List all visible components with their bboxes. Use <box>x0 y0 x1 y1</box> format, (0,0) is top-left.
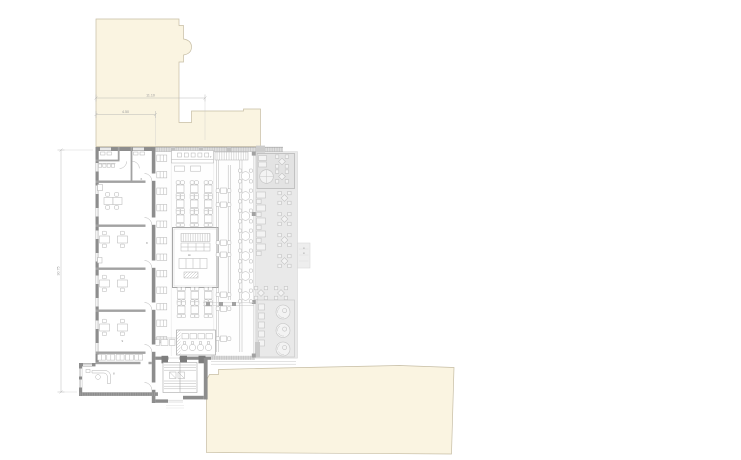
lobby-east-wall <box>204 358 208 400</box>
hall-south-wall <box>155 356 211 364</box>
room-label: 6 <box>141 177 143 181</box>
floor-plan-canvas: 11.10 4.50 30.75 <box>0 0 741 460</box>
room-label: 9 <box>122 339 124 343</box>
sink <box>99 164 102 167</box>
sink <box>111 164 114 167</box>
dimension-label-left-width: 4.50 <box>122 110 129 114</box>
room-label: 8 <box>146 241 148 245</box>
bay-mark <box>303 248 304 249</box>
planter <box>276 324 290 338</box>
planter <box>276 342 290 356</box>
lobby-south-wall <box>155 399 168 402</box>
site-area-north <box>96 19 261 147</box>
sink <box>103 164 106 167</box>
dimension-label-height: 30.75 <box>57 267 61 276</box>
reception-floor <box>79 363 155 396</box>
terrace-bay <box>298 243 311 268</box>
bay-mark <box>303 253 304 254</box>
storage-bench-row <box>98 355 143 361</box>
site-area-south <box>207 366 455 455</box>
dimension-left-height: 30.75 <box>57 149 93 394</box>
room-label: 8 <box>113 372 115 376</box>
entrance-stair-lobby <box>155 358 207 408</box>
planter <box>276 305 290 319</box>
lobby-south-wall <box>183 396 204 400</box>
dining-tables-north <box>176 181 212 227</box>
room-label: 7 <box>210 155 212 159</box>
east-wall <box>152 147 156 403</box>
architectural-sheet: 11.10 4.50 30.75 <box>0 0 741 460</box>
terrace-pavilion <box>257 154 295 189</box>
dimension-label-total-width: 11.10 <box>146 93 155 97</box>
staircase <box>163 363 197 393</box>
servery <box>177 330 216 355</box>
sink <box>107 164 110 167</box>
kitchen <box>173 228 219 288</box>
